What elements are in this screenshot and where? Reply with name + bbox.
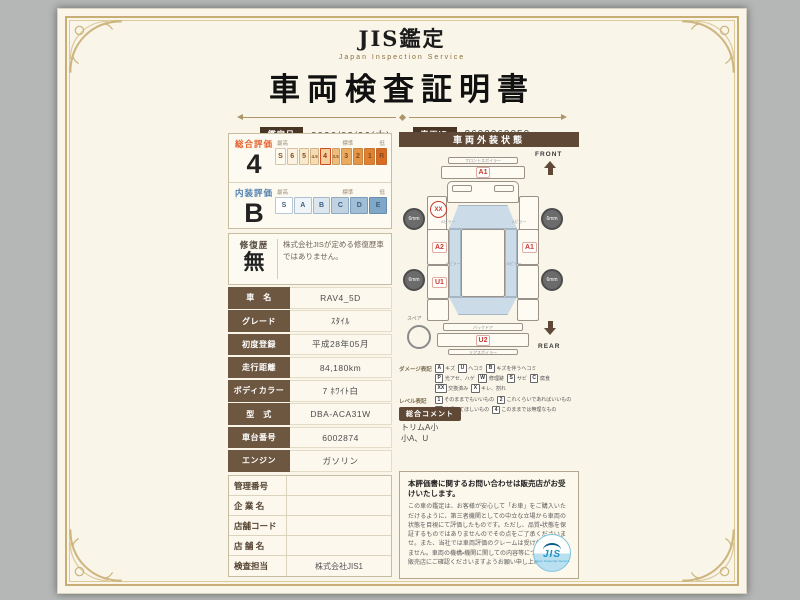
table-row: 走行距離84,180km — [228, 357, 392, 379]
front-bumper-part: A1 — [441, 166, 525, 179]
legend-item: C腐食 — [530, 374, 550, 383]
rear-spoiler-part: リアスポイラー — [448, 349, 518, 355]
logo-text: JIS — [543, 550, 561, 560]
scale-cell: 1 — [364, 148, 375, 165]
table-row: エンジンガソリン — [228, 450, 392, 472]
vehicle-info-table: 車 名RAV4_5D グレードｽﾀｲﾙ 初度登録平成28年05月 走行距離84,… — [228, 287, 392, 472]
scale-cell: 6 — [287, 148, 298, 165]
damage-legend-row: ダメージ表記 Aキズ Uヘコミ Bキズを伴うヘコミ P光アセ、ハゲ W修理跡 S… — [399, 364, 579, 393]
scale-cell: 2 — [353, 148, 364, 165]
legend-item: 4このままでは無理なもの — [492, 406, 556, 415]
scale-cell-active: B — [313, 197, 331, 214]
damage-marker-left-rear-door: U1 — [432, 277, 447, 288]
rear-right-tire-depth: 6mm — [541, 269, 563, 291]
b-pillar-left-label: Bピラー — [446, 261, 461, 267]
overall-comment-label: 総合コメント — [399, 407, 461, 421]
scale-legend-low: 低 — [379, 188, 385, 196]
front-arrow-icon — [543, 161, 557, 175]
rear-window-part — [449, 297, 517, 315]
evaluation-panel: 総合評価 4 最高 標準 低 S 6 5 4.5 4 3.5 3 2 — [228, 133, 392, 229]
corner-flourish — [67, 526, 125, 584]
logo-subtext: Japan Inspection Service — [534, 560, 569, 563]
damage-marker-front-bumper: A1 — [476, 167, 491, 178]
legend-item: Sサビ — [507, 374, 527, 383]
jis-logo: JIS Japan Inspection Service — [533, 534, 571, 572]
scale-cell: A — [294, 197, 312, 214]
b-pillar-right-label: Bピラー — [507, 261, 522, 267]
legend-item: Uヘコミ — [458, 364, 483, 373]
certificate-header: JIS鑑定 Japan Inspection Service 車両検査証明書 鑑… — [58, 23, 746, 142]
interior-evaluation-row: 内装評価 B 最高 標準 低 S A B C D E — [229, 182, 391, 230]
front-direction-label: FRONT — [535, 151, 562, 158]
table-row: 車 名RAV4_5D — [228, 287, 392, 309]
damage-marker-right-front-door: A1 — [522, 242, 537, 253]
legend-item: Aキズ — [435, 364, 455, 373]
table-row: 初度登録平成28年05月 — [228, 334, 392, 356]
title-divider — [237, 114, 567, 120]
scale-legend-mid: 標準 — [342, 139, 353, 147]
scale-cell: C — [331, 197, 349, 214]
rear-arrow-icon — [543, 321, 557, 335]
rear-left-tire-depth: 6mm — [403, 269, 425, 291]
interior-grade-scale: 最高 標準 低 S A B C D E — [275, 187, 387, 228]
repair-history-note: 株式会社JISが定める修復歴車ではありません。 — [277, 239, 387, 279]
table-row: ボディカラー7 ﾎﾜｲﾄ白 — [228, 380, 392, 402]
right-headlight-part — [494, 185, 514, 192]
scale-cell: E — [369, 197, 387, 214]
back-door-part: バックドア — [443, 323, 523, 331]
dealer-notice-box: 本評価書に関するお問い合わせは販売店がお受けいたします。 この車の鑑定は、お客様… — [399, 471, 579, 579]
corner-flourish — [679, 526, 737, 584]
legend-item: Bキズを伴うヘコミ — [486, 364, 536, 373]
table-row: 管理番号 — [229, 476, 391, 496]
scale-cell-active: 4 — [320, 148, 331, 165]
front-right-tire-depth: 6mm — [541, 208, 563, 230]
table-row: 型 式DBA-ACA31W — [228, 403, 392, 425]
legend-item: XX交換済み — [435, 384, 468, 393]
table-row: 車台番号6002874 — [228, 427, 392, 449]
rear-left-quarter-part — [427, 299, 449, 321]
left-headlight-part — [452, 185, 472, 192]
legend-item: 1そのままでもいいもの — [435, 396, 494, 405]
scale-legend-high: 最高 — [277, 139, 288, 147]
scale-legend-mid: 標準 — [342, 188, 353, 196]
front-spoiler-part: フロントスポイラー — [448, 157, 518, 164]
table-row: 店 舗 名 — [229, 536, 391, 556]
scale-cell: 3 — [341, 148, 352, 165]
windshield-part — [449, 205, 517, 229]
repair-history-value: 無 — [233, 251, 275, 274]
damage-marker-front-left-fender: XX — [430, 201, 447, 218]
interior-grade-value: B — [233, 199, 275, 229]
brand-subtitle: Japan Inspection Service — [58, 54, 746, 61]
scale-cell: 3.5 — [332, 148, 340, 165]
scale-cell: S — [275, 148, 286, 165]
notice-title: 本評価書に関するお問い合わせは販売店がお受けいたします。 — [408, 479, 570, 499]
table-row: 検査担当株式会社JIS1 — [229, 556, 391, 576]
hood-part — [447, 181, 519, 203]
damage-marker-left-front-door: A2 — [432, 242, 447, 253]
legend-item: P光アセ、ハゲ — [435, 374, 475, 383]
repair-history-label: 修復歴 — [233, 239, 275, 251]
rear-direction-label: REAR — [538, 343, 560, 350]
front-left-tire-depth: 6mm — [403, 208, 425, 230]
table-row: 企 業 名 — [229, 496, 391, 516]
roof-part — [461, 229, 505, 297]
damage-marker-rear-bumper: U2 — [476, 335, 491, 346]
a-pillar-left-label: Aピラー — [441, 219, 456, 225]
damage-legend-label: ダメージ表記 — [399, 364, 435, 393]
table-row: 店舗コード — [229, 516, 391, 536]
scale-cell: S — [275, 197, 293, 214]
scale-cell: R — [376, 148, 387, 165]
spare-tire-part — [407, 325, 431, 349]
overall-grade-value: 4 — [233, 150, 275, 180]
rear-bumper-part: U2 — [437, 333, 529, 347]
scale-cell: 4.5 — [310, 148, 318, 165]
scale-legend-low: 低 — [379, 139, 385, 147]
scale-legend-high: 最高 — [277, 188, 288, 196]
exterior-section-title: 車両外装状態 — [399, 132, 579, 147]
a-pillar-right-label: Aピラー — [512, 219, 527, 225]
screenshot-root: { "colors":{"brand_brown":"#5f4936","acc… — [0, 0, 800, 600]
store-info-table: 管理番号 企 業 名 店舗コード 店 舗 名 検査担当株式会社JIS1 — [228, 475, 392, 577]
repair-history-panel: 修復歴 無 株式会社JISが定める修復歴車ではありません。 — [228, 233, 392, 285]
overall-grade-scale: 最高 標準 低 S 6 5 4.5 4 3.5 3 2 1 R — [275, 138, 387, 180]
right-rear-door-part — [517, 265, 539, 299]
spare-tire-label: スペア — [407, 315, 422, 322]
certificate-paper: JIS鑑定 Japan Inspection Service 車両検査証明書 鑑… — [57, 8, 747, 594]
car-exterior-diagram: FRONT フロントスポイラー A1 XX 6mm 6mm 6mm 6mm Aピ… — [399, 149, 579, 361]
brand-title: JIS鑑定 — [58, 23, 746, 53]
legend-item: Xキレ、割れ — [471, 384, 506, 393]
overall-comment-line: トリムA小 — [401, 422, 438, 433]
scale-cell: 5 — [299, 148, 310, 165]
scale-cell: D — [350, 197, 368, 214]
legend-item: W修理跡 — [478, 374, 504, 383]
overall-evaluation-row: 総合評価 4 最高 標準 低 S 6 5 4.5 4 3.5 3 2 — [229, 134, 391, 182]
certificate-title: 車両検査証明書 — [58, 64, 746, 109]
table-row: グレードｽﾀｲﾙ — [228, 310, 392, 332]
overall-comment-line: 小A、U — [401, 433, 428, 444]
rear-right-quarter-part — [517, 299, 539, 321]
legend-item: 2これくらいであればいいもの — [497, 396, 571, 405]
